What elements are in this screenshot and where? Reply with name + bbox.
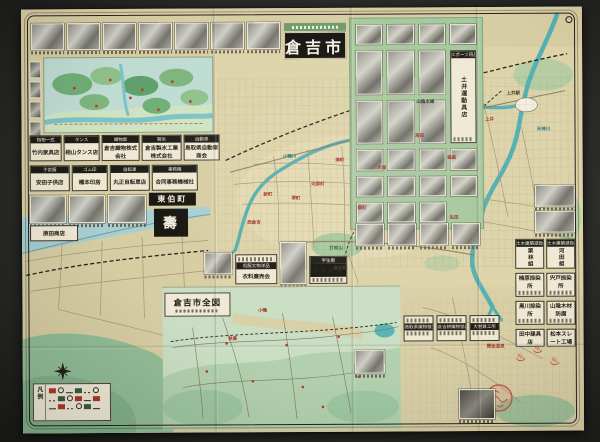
ad-iryo-renbaikai: 呉服太物洋品 衣料廉売会 <box>235 254 277 284</box>
ad-name: 栗林組 <box>516 247 543 268</box>
tohaku-photo-row <box>30 195 146 228</box>
ad-name: 合同事務機械社 <box>153 173 197 190</box>
photo-thumbnail <box>459 389 495 423</box>
ad-jimukikai: 事務機 合同事務機械社 <box>152 165 198 191</box>
ad-name: 土井運動具店 <box>451 58 476 136</box>
photo-thumbnail <box>535 185 575 211</box>
panel-photo-row <box>356 223 480 250</box>
photo-thumbnail <box>103 23 136 54</box>
photo-thumbnail <box>387 24 413 44</box>
legend-symbols <box>46 384 110 420</box>
photo-thumbnail <box>204 252 232 278</box>
ad-kurayoshi-seihyo: 製氷 倉吉製氷工業株式会社 <box>142 135 182 161</box>
ad-kuribayashi-gumi: 土木建築請負 栗林組 <box>515 239 544 269</box>
photo-thumbnail <box>419 50 445 94</box>
photo-thumbnail <box>419 150 445 170</box>
ad-name: 安田子供店 <box>31 173 69 190</box>
ad-doi-sports: スポーツ用品 土井運動具店 <box>450 50 477 143</box>
photo-thumbnail <box>356 25 382 45</box>
ad-kasuri-kumiai: 倉吉絣織物協同組合 <box>437 315 467 341</box>
photo-thumbnail <box>419 176 445 196</box>
photo-thumbnail <box>388 100 414 144</box>
ad-name: 楠原捺染所 <box>516 274 543 290</box>
ad-name: 鳥取県織物検査所 <box>405 323 433 330</box>
left-ad-row-2: 子供服 安田子供店 ゴム印 橋本印房 自転車 丸正自転車店 事務機 合同事務機械… <box>30 165 198 192</box>
town-banner-tohaku: 東伯町 <box>149 193 196 206</box>
photographed-map-scene: 倉吉市 <box>0 0 600 442</box>
ad-name: 倉吉織物株式会社 <box>103 143 139 160</box>
ad-jitensha-ten: 自転車 丸正自転車店 <box>110 165 150 191</box>
ad-orimono-kensajo: 鳥取県織物検査所 <box>404 315 434 341</box>
title-top-strip <box>284 23 346 31</box>
ad-name: 大村鉄工所 <box>471 323 499 330</box>
ad-yasuda-kodomo: 子供服 安田子供店 <box>30 165 70 191</box>
photo-thumbnail <box>30 195 66 227</box>
ad-sanin-mokuzai: 山陰木材防腐 <box>546 301 575 325</box>
hot-spring-icon: ♨ <box>532 343 543 355</box>
ad-kurokawa-nassen: 黒川捺染所 <box>515 301 544 325</box>
ad-name: 倉吉製氷工業株式会社 <box>143 143 181 160</box>
photo-thumbnail <box>388 202 414 222</box>
ad-aiyama-tansu: タンス 相山タンス店 <box>64 135 100 161</box>
photo-thumbnail <box>388 150 414 170</box>
ad-name: 鳥取県自動車商会 <box>185 142 219 159</box>
photo-thumbnail <box>357 150 383 170</box>
map-paper: 倉吉市 <box>21 7 584 434</box>
photo-thumbnail <box>211 22 244 53</box>
photo-thumbnail <box>535 211 575 237</box>
ad-name: 原田商店 <box>31 226 77 240</box>
ad-name: 衣料廉売会 <box>236 269 276 283</box>
photo-thumbnail <box>388 223 416 249</box>
ad-harada: 原田商店 <box>30 225 78 241</box>
photo-thumbnail <box>419 202 445 222</box>
photo-thumbnail <box>419 100 445 144</box>
ad-name: 松本スレート工場 <box>548 330 575 346</box>
ad-hashimoto-inbo: ゴム印 橋本印房 <box>72 165 108 191</box>
ad-matsumoto-slate: 松本スレート工場 <box>547 329 576 347</box>
hot-spring-icon: ♨ <box>515 351 526 363</box>
legend-title: 凡例 <box>34 384 46 420</box>
photo-thumbnail <box>450 24 476 44</box>
photo-thumbnail <box>247 22 280 53</box>
photo-thumbnail <box>175 22 208 53</box>
photo-thumbnail <box>451 176 477 196</box>
bottom-right-ad-row: 鳥取県織物検査所 倉吉絣織物協同組合 大村鉄工所 <box>404 315 500 342</box>
photo-thumbnail <box>29 81 41 98</box>
photo-thumbnail <box>29 101 41 118</box>
ad-name: 丸正自転車店 <box>111 173 149 190</box>
ad-name: 竹内家具店 <box>31 143 61 160</box>
photo-thumbnail <box>108 195 146 227</box>
legend-box: 凡例 <box>33 383 111 421</box>
ad-jidosha-shokai: 自動車 鳥取県自動車商会 <box>184 134 220 160</box>
photo-thumbnail <box>388 176 414 196</box>
photo-thumbnail <box>357 176 383 196</box>
ad-omura-tekkosho: 大村鉄工所 <box>470 315 500 341</box>
photo-thumbnail <box>67 23 100 54</box>
ad-name: 山陰木材防腐 <box>547 302 574 318</box>
photo-thumbnail <box>452 223 480 249</box>
ad-name: 橋本印房 <box>73 173 107 190</box>
ad-shishido-nassen: 宍戸捺染所 <box>546 273 575 297</box>
pictorial-tourist-map <box>43 56 213 133</box>
photo-thumbnail <box>450 150 476 170</box>
left-ad-row-1: 指物一式 竹内家具店 タンス 相山タンス店 織物卸 倉吉織物株式会社 製氷 倉吉… <box>30 134 220 161</box>
ad-name: 黒川捺染所 <box>516 302 543 318</box>
ad-name: 倉吉絣織物協同組合 <box>438 323 466 330</box>
photo-thumbnail <box>69 195 105 227</box>
ad-kurayoshi-orimono: 織物卸 倉吉織物株式会社 <box>102 135 140 161</box>
photo-thumbnail-tall <box>280 242 306 288</box>
photo-thumbnail <box>387 51 413 95</box>
photo-thumbnail <box>356 224 384 250</box>
photo-thumbnail <box>139 23 172 54</box>
ad-name: 小学生服 <box>310 264 346 277</box>
photo-thumbnail <box>356 51 382 95</box>
inset-title-box: 倉吉市全図 <box>164 292 230 316</box>
photo-thumbnail <box>31 23 64 54</box>
top-photo-strip <box>31 22 280 54</box>
ad-name: 河田組 <box>547 247 574 268</box>
ad-takeuchi-kagu: 指物一式 竹内家具店 <box>30 135 62 161</box>
photo-thumbnail <box>356 100 382 144</box>
ad-name: 宍戸捺染所 <box>547 274 574 290</box>
map-title: 倉吉市 <box>284 32 346 59</box>
ad-kotobuki-box: 壽 <box>154 209 188 237</box>
ad-name: 相山タンス店 <box>65 143 99 160</box>
inset-title: 倉吉市全図 <box>174 296 222 308</box>
ad-shogakuseifuku: 学生服 小学生服 <box>309 256 347 284</box>
photo-thumbnail <box>357 202 383 222</box>
ad-kawata-gumi: 土木建築請負 河田組 <box>546 239 575 269</box>
photo-thumbnail <box>418 24 444 44</box>
photo-thumbnail <box>29 61 41 78</box>
photo-thumbnail <box>355 350 385 378</box>
hot-spring-icon: ♨ <box>549 355 560 367</box>
photo-thumbnail <box>420 223 448 249</box>
ad-kusuhara-nassen: 楠原捺染所 <box>515 273 544 297</box>
photo-grid-panel: スポーツ用品 土井運動具店 <box>349 17 484 230</box>
